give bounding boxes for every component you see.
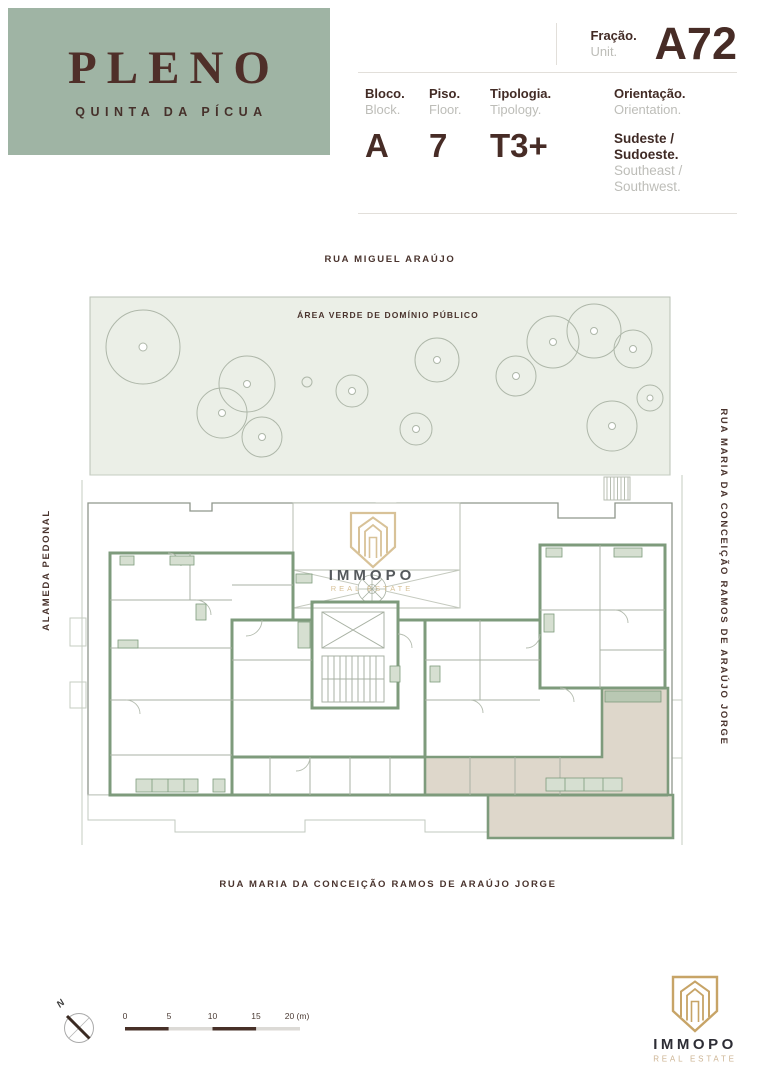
- svg-text:5: 5: [167, 1011, 172, 1021]
- attributes-row: Bloco. Block. A Piso. Floor. 7 Tipologia…: [358, 73, 737, 209]
- vertical-divider: [556, 23, 557, 65]
- street-label-left: ALAMEDA PEDONAL: [41, 509, 52, 631]
- north-label: N: [55, 997, 68, 1011]
- footer-logo-tagline: REAL ESTATE: [653, 1055, 737, 1064]
- brand-subtitle: QUINTA DA PÍCUA: [75, 105, 267, 119]
- floor-field: Piso. Floor. 7: [429, 86, 490, 195]
- svg-text:15: 15: [251, 1011, 261, 1021]
- fraction-label-en: Unit.: [590, 44, 644, 60]
- divider: [358, 213, 737, 214]
- unit-info-header: Fração. Unit. A72 Bloco. Block. A Piso. …: [358, 20, 737, 214]
- footer-logo-name: IMMOPO: [653, 1036, 737, 1053]
- elevator-core: [322, 612, 384, 648]
- brand-name: PLENO: [68, 45, 280, 92]
- orientation-field: Orientação. Orientation. Sudeste / Sudoe…: [614, 86, 737, 195]
- brand-box: PLENO QUINTA DA PÍCUA: [8, 8, 330, 155]
- footer-logo: IMMOPO REAL ESTATE: [653, 977, 737, 1064]
- scale-bar: 0 5 10 15 20 (m): [123, 1011, 310, 1031]
- green-area-label: ÁREA VERDE DE DOMÍNIO PÚBLICO: [297, 309, 479, 320]
- unit-code: A72: [654, 22, 737, 66]
- watermark-name: IMMOPO: [329, 567, 416, 584]
- green-area: ÁREA VERDE DE DOMÍNIO PÚBLICO: [90, 297, 670, 475]
- floor-value: 7: [429, 129, 490, 162]
- svg-text:10: 10: [208, 1011, 218, 1021]
- svg-text:0: 0: [123, 1011, 128, 1021]
- orientation-value-en: Southeast / Southwest.: [614, 163, 737, 195]
- immopo-shield-icon: [673, 977, 717, 1031]
- exterior-stairs: [604, 477, 630, 500]
- watermark-tagline: REAL ESTATE: [331, 584, 413, 593]
- street-label-bottom: RUA MARIA DA CONCEIÇÃO RAMOS DE ARAÚJO J…: [219, 878, 556, 890]
- floorplan-sheet: PLENO QUINTA DA PÍCUA Fração. Unit. A72 …: [0, 0, 763, 1080]
- typology-value: T3+: [490, 129, 614, 162]
- street-label-right: RUA MARIA DA CONCEIÇÃO RAMOS DE ARAÚJO J…: [718, 408, 730, 745]
- site-plan: RUA MIGUEL ARAÚJO RUA MARIA DA CONCEIÇÃO…: [0, 230, 763, 1080]
- street-label-top: RUA MIGUEL ARAÚJO: [325, 253, 456, 265]
- compass: N: [55, 997, 94, 1043]
- scale-end-label: 20 (m): [285, 1011, 310, 1021]
- block-field: Bloco. Block. A: [365, 86, 429, 195]
- orientation-value: Sudeste / Sudoeste.: [614, 131, 737, 163]
- stairs: [322, 656, 384, 702]
- fraction-row: Fração. Unit. A72: [358, 20, 737, 68]
- fraction-label: Fração.: [590, 28, 644, 44]
- typology-field: Tipologia. Tipology. T3+: [490, 86, 614, 195]
- block-value: A: [365, 129, 429, 162]
